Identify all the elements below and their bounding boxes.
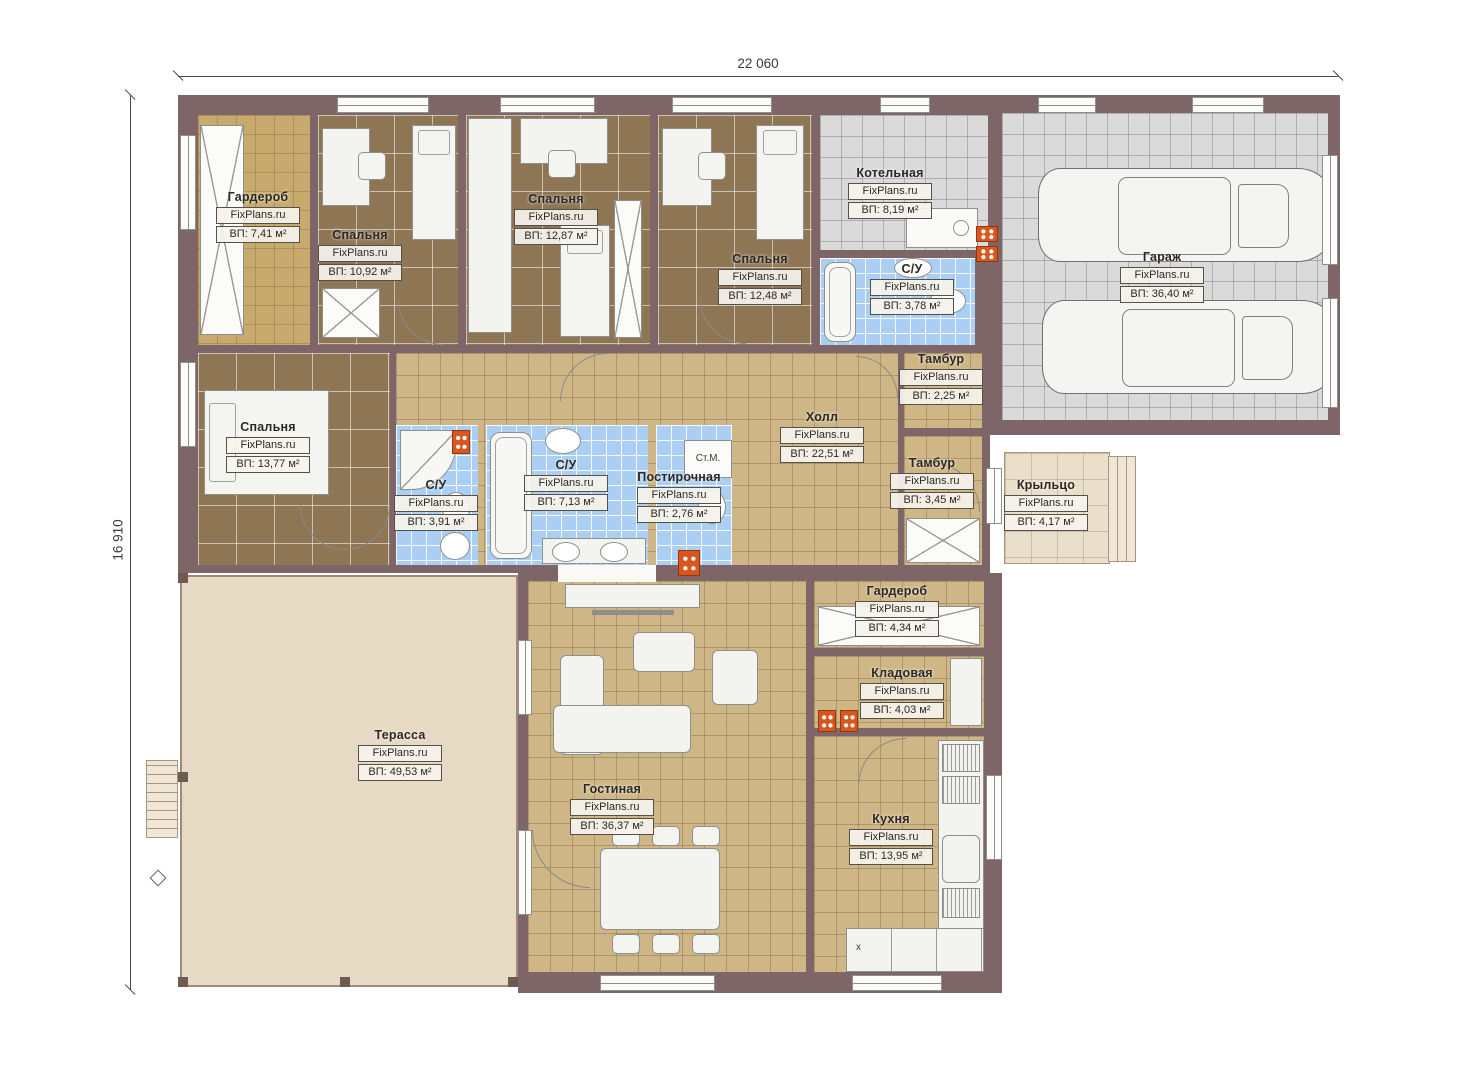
kitchen-counter	[846, 928, 984, 972]
watermark: FixPlans.ru	[849, 829, 933, 846]
radiator	[976, 226, 998, 242]
room-name: С/У	[524, 458, 608, 473]
chair	[548, 150, 576, 178]
window	[180, 135, 196, 230]
room-name: Спальня	[514, 192, 598, 207]
watermark: FixPlans.ru	[848, 183, 932, 200]
coffee-table	[633, 632, 695, 672]
room-name: Кухня	[849, 812, 933, 827]
room-area: ВП: 36,40 м²	[1120, 286, 1204, 303]
room-name: Гостиная	[570, 782, 654, 797]
car	[1038, 168, 1332, 262]
chair	[698, 152, 726, 180]
radiator	[452, 430, 470, 454]
room-area: ВП: 12,48 м²	[718, 288, 802, 305]
room-area: ВП: 10,92 м²	[318, 264, 402, 281]
room-area: ВП: 13,77 м²	[226, 456, 310, 473]
watermark: FixPlans.ru	[524, 475, 608, 492]
porch-steps	[1108, 456, 1136, 562]
wardrobe-cabinet	[468, 118, 512, 333]
room-name: Гардероб	[216, 190, 300, 205]
room-name: С/У	[870, 262, 954, 277]
label-bath-713: С/У FixPlans.ru ВП: 7,13 м²	[524, 458, 608, 511]
chair	[652, 934, 680, 954]
window	[180, 362, 196, 447]
radiator	[818, 710, 836, 732]
radiator	[840, 710, 858, 732]
label-tambur-2: Тамбур FixPlans.ru ВП: 3,45 м²	[890, 456, 974, 509]
bed	[756, 125, 804, 240]
room-name: Спальня	[226, 420, 310, 435]
room-name: Постирочная	[637, 470, 721, 485]
chair	[692, 934, 720, 954]
room-area: ВП: 2,76 м²	[637, 506, 721, 523]
room-name: Спальня	[318, 228, 402, 243]
room-name: Кладовая	[860, 666, 944, 681]
bathtub	[824, 262, 856, 342]
room-area: ВП: 3,45 м²	[890, 492, 974, 509]
window	[880, 97, 930, 113]
room-name: Котельная	[848, 166, 932, 181]
watermark: FixPlans.ru	[890, 473, 974, 490]
sofa	[553, 705, 691, 753]
watermark: FixPlans.ru	[394, 495, 478, 512]
dimension-line-top	[178, 76, 1338, 77]
floor-terrace	[180, 575, 518, 987]
label-kitchen: Кухня FixPlans.ru ВП: 13,95 м²	[849, 812, 933, 865]
room-name: Тамбур	[890, 456, 974, 471]
label-bath-378: С/У FixPlans.ru ВП: 3,78 м²	[870, 262, 954, 315]
terrace-side-steps	[146, 760, 178, 838]
stove	[942, 744, 980, 772]
watermark: FixPlans.ru	[860, 683, 944, 700]
window	[1038, 97, 1096, 113]
terrace-post	[178, 573, 188, 583]
watermark: FixPlans.ru	[514, 209, 598, 226]
sink	[552, 542, 580, 562]
dimension-line-left	[130, 95, 131, 990]
room-area: ВП: 8,19 м²	[848, 202, 932, 219]
room-area: ВП: 12,87 м²	[514, 228, 598, 245]
label-terrace: Терасса FixPlans.ru ВП: 49,53 м²	[358, 728, 442, 781]
bed	[412, 125, 456, 240]
room-name: С/У	[394, 478, 478, 493]
label-garage: Гараж FixPlans.ru ВП: 36,40 м²	[1120, 250, 1204, 303]
watermark: FixPlans.ru	[216, 207, 300, 224]
room-area: ВП: 4,17 м²	[1004, 514, 1088, 531]
window	[518, 640, 532, 715]
room-area: ВП: 3,91 м²	[394, 514, 478, 531]
window	[986, 775, 1002, 860]
tv-stand	[565, 584, 700, 608]
car	[1042, 300, 1336, 394]
floor-plan: 22 060 16 910	[0, 0, 1474, 1080]
entry-door	[986, 468, 1002, 524]
closet	[906, 518, 980, 563]
terrace-post	[508, 977, 518, 987]
label-tambur-1: Тамбур FixPlans.ru ВП: 2,25 м²	[899, 352, 983, 405]
kitchen-sink	[942, 835, 980, 883]
terrace-door	[518, 830, 532, 915]
exterior-marker	[150, 870, 167, 887]
watermark: FixPlans.ru	[780, 427, 864, 444]
watermark: FixPlans.ru	[1120, 267, 1204, 284]
closet	[322, 288, 380, 338]
room-name: Тамбур	[899, 352, 983, 367]
watermark: FixPlans.ru	[899, 369, 983, 386]
label-boiler: Котельная FixPlans.ru ВП: 8,19 м²	[848, 166, 932, 219]
label-bedroom-3: Спальня FixPlans.ru ВП: 12,48 м²	[718, 252, 802, 305]
closet	[614, 200, 642, 338]
room-area: ВП: 13,95 м²	[849, 848, 933, 865]
window	[852, 975, 942, 991]
room-area: ВП: 7,13 м²	[524, 494, 608, 511]
room-area: ВП: 3,78 м²	[870, 298, 954, 315]
sink	[600, 542, 628, 562]
dining-table	[600, 848, 720, 930]
watermark: FixPlans.ru	[226, 437, 310, 454]
terrace-post	[178, 772, 188, 782]
window	[500, 97, 595, 113]
dimension-height-label: 16 910	[111, 514, 126, 565]
room-name: Терасса	[358, 728, 442, 743]
room-area: ВП: 2,25 м²	[899, 388, 983, 405]
label-bedroom-2: Спальня FixPlans.ru ВП: 12,87 м²	[514, 192, 598, 245]
label-porch: Крыльцо FixPlans.ru ВП: 4,17 м²	[1004, 478, 1088, 531]
stove	[942, 776, 980, 804]
room-name: Холл	[780, 410, 864, 425]
watermark: FixPlans.ru	[1004, 495, 1088, 512]
watermark: FixPlans.ru	[358, 745, 442, 762]
floor-marker: x	[856, 942, 861, 953]
room-name: Крыльцо	[1004, 478, 1088, 493]
hall-living-opening	[558, 565, 656, 582]
room-area: ВП: 4,03 м²	[860, 702, 944, 719]
chair	[692, 826, 720, 846]
watermark: FixPlans.ru	[718, 269, 802, 286]
watermark: FixPlans.ru	[855, 601, 939, 618]
room-area: ВП: 7,41 м²	[216, 226, 300, 243]
garage-door	[1322, 155, 1338, 265]
chair	[358, 152, 386, 180]
label-laundry: Постирочная FixPlans.ru ВП: 2,76 м²	[637, 470, 721, 523]
window	[337, 97, 429, 113]
dimension-width-label: 22 060	[732, 56, 783, 71]
toilet	[545, 428, 581, 454]
watermark: FixPlans.ru	[637, 487, 721, 504]
chair	[652, 826, 680, 846]
label-storage: Кладовая FixPlans.ru ВП: 4,03 м²	[860, 666, 944, 719]
watermark: FixPlans.ru	[318, 245, 402, 262]
label-bedroom-4: Спальня FixPlans.ru ВП: 13,77 м²	[226, 420, 310, 473]
label-bedroom-1: Спальня FixPlans.ru ВП: 10,92 м²	[318, 228, 402, 281]
armchair	[712, 650, 758, 705]
label-living: Гостиная FixPlans.ru ВП: 36,37 м²	[570, 782, 654, 835]
room-name: Гараж	[1120, 250, 1204, 265]
window	[1192, 97, 1264, 113]
label-wardrobe-2: Гардероб FixPlans.ru ВП: 4,34 м²	[855, 584, 939, 637]
label-wardrobe-1: Гардероб FixPlans.ru ВП: 7,41 м²	[216, 190, 300, 243]
label-bath-391: С/У FixPlans.ru ВП: 3,91 м²	[394, 478, 478, 531]
room-area: ВП: 36,37 м²	[570, 818, 654, 835]
sink	[440, 532, 470, 560]
label-hall: Холл FixPlans.ru ВП: 22,51 м²	[780, 410, 864, 463]
tv	[592, 610, 674, 615]
room-area: ВП: 49,53 м²	[358, 764, 442, 781]
window	[672, 97, 772, 113]
terrace-post	[340, 977, 350, 987]
terrace-post	[178, 977, 188, 987]
window	[600, 975, 715, 991]
room-name: Спальня	[718, 252, 802, 267]
watermark: FixPlans.ru	[870, 279, 954, 296]
radiator	[678, 550, 700, 576]
room-name: Гардероб	[855, 584, 939, 599]
room-area: ВП: 22,51 м²	[780, 446, 864, 463]
garage-door	[1322, 298, 1338, 408]
chair	[612, 934, 640, 954]
radiator	[976, 246, 998, 262]
shelf	[950, 658, 982, 726]
room-area: ВП: 4,34 м²	[855, 620, 939, 637]
dishwasher	[942, 888, 980, 918]
watermark: FixPlans.ru	[570, 799, 654, 816]
